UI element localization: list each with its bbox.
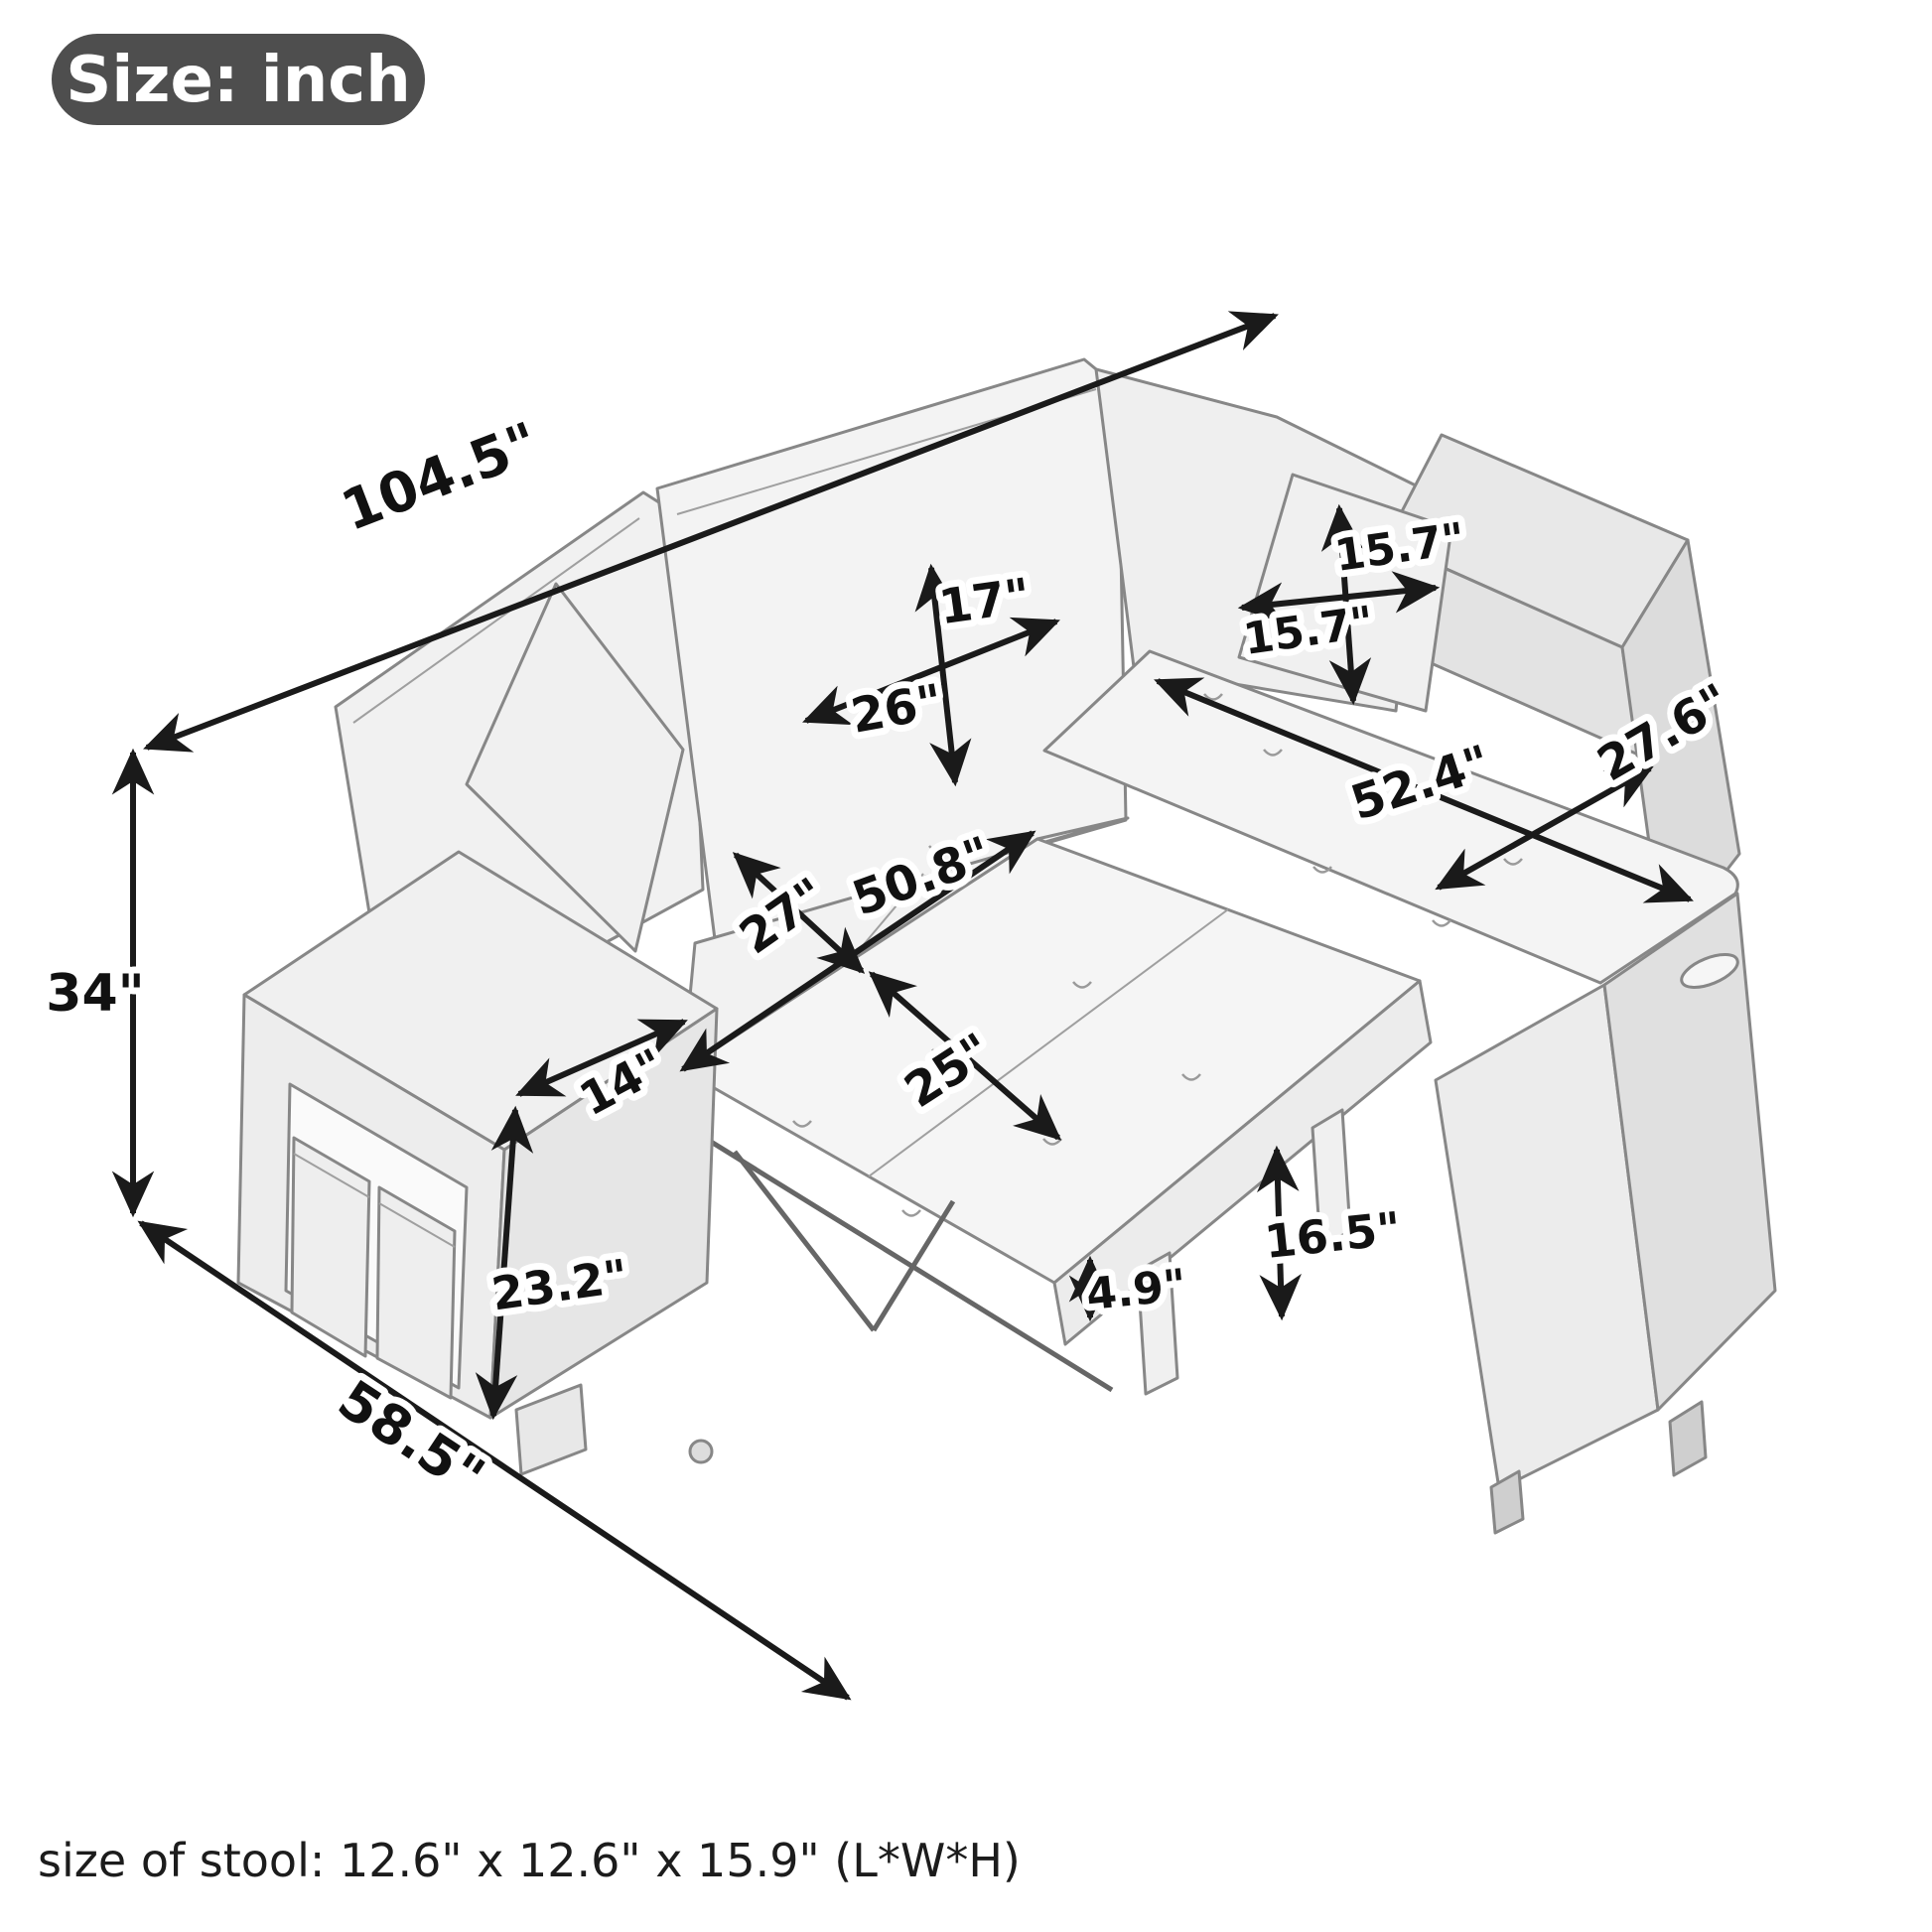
mattress-thickness-label: 4.9"	[1084, 1260, 1189, 1320]
bed-caster-wheel	[690, 1441, 712, 1462]
diagram-canvas: 104.5" 34" 58.5" 17" 26" 15.7" 15.7" 52.…	[0, 0, 1932, 1932]
overall-height-label: 34"	[46, 964, 144, 1024]
badge-label: Size: inch	[66, 44, 411, 117]
dimension-diagram: 104.5" 34" 58.5" 17" 26" 15.7" 15.7" 52.…	[0, 0, 1932, 1932]
size-unit-badge: Size: inch	[52, 34, 425, 125]
stool-size-caption: size of stool: 12.6" x 12.6" x 15.9" (L*…	[38, 1834, 1021, 1887]
